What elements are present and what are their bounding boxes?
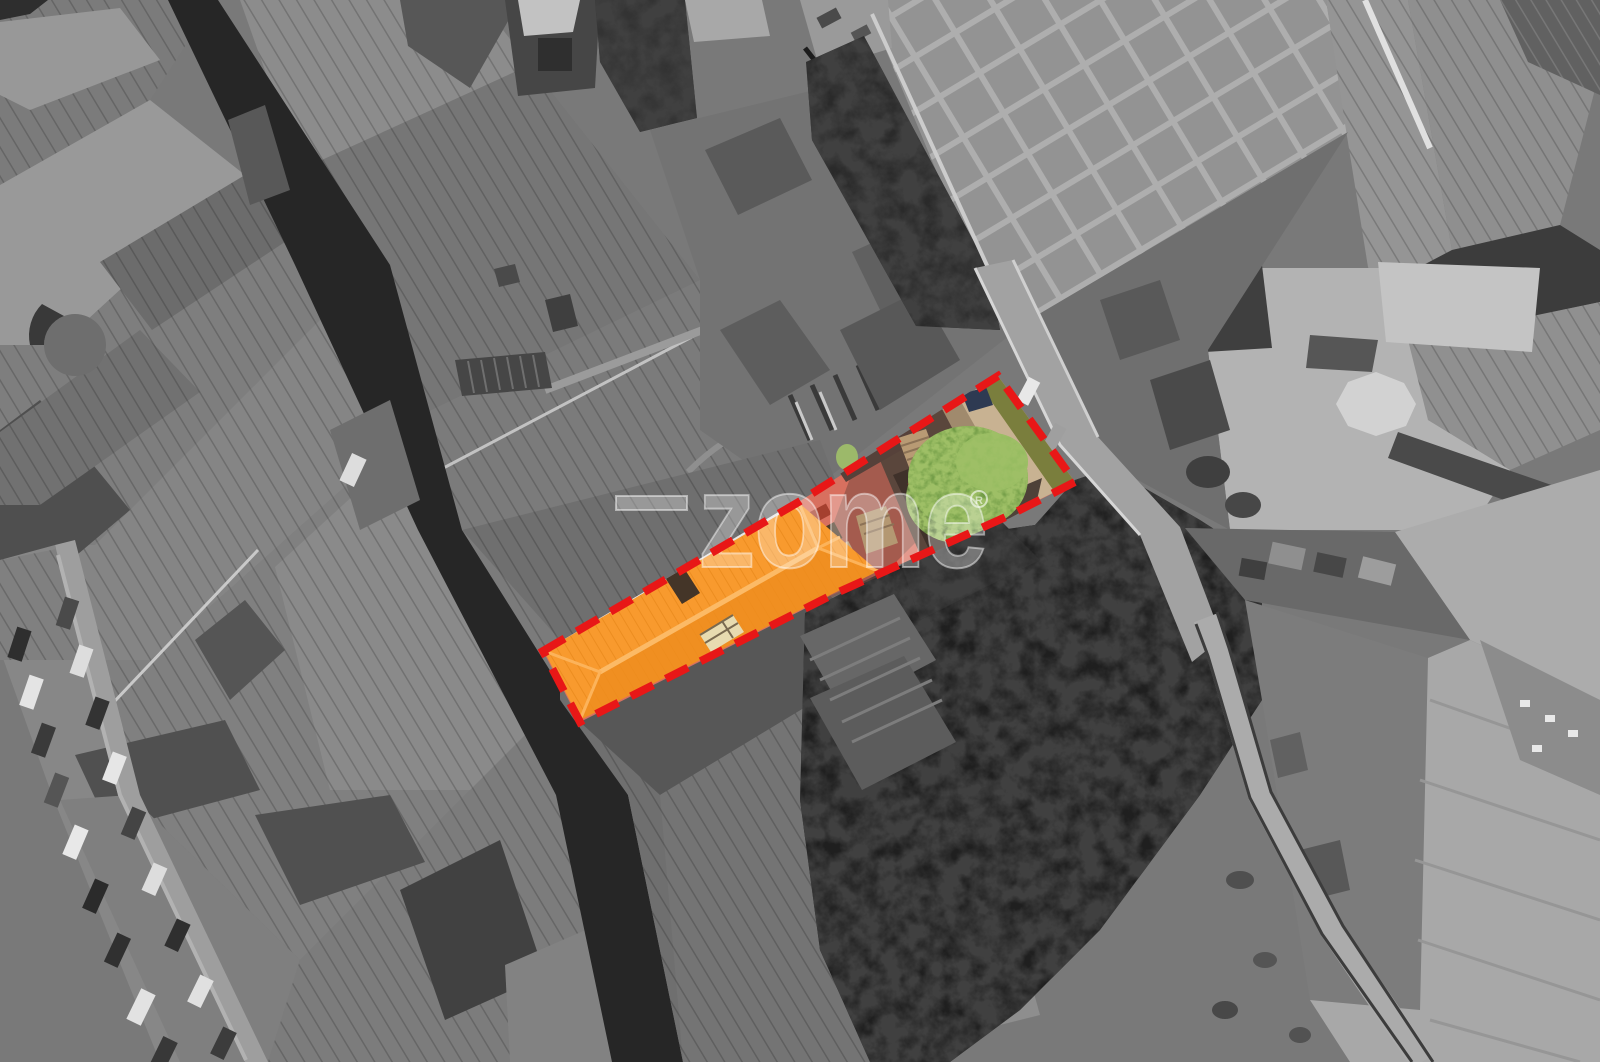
- svg-text:R: R: [975, 495, 983, 507]
- svg-text:zome: zome: [698, 444, 987, 596]
